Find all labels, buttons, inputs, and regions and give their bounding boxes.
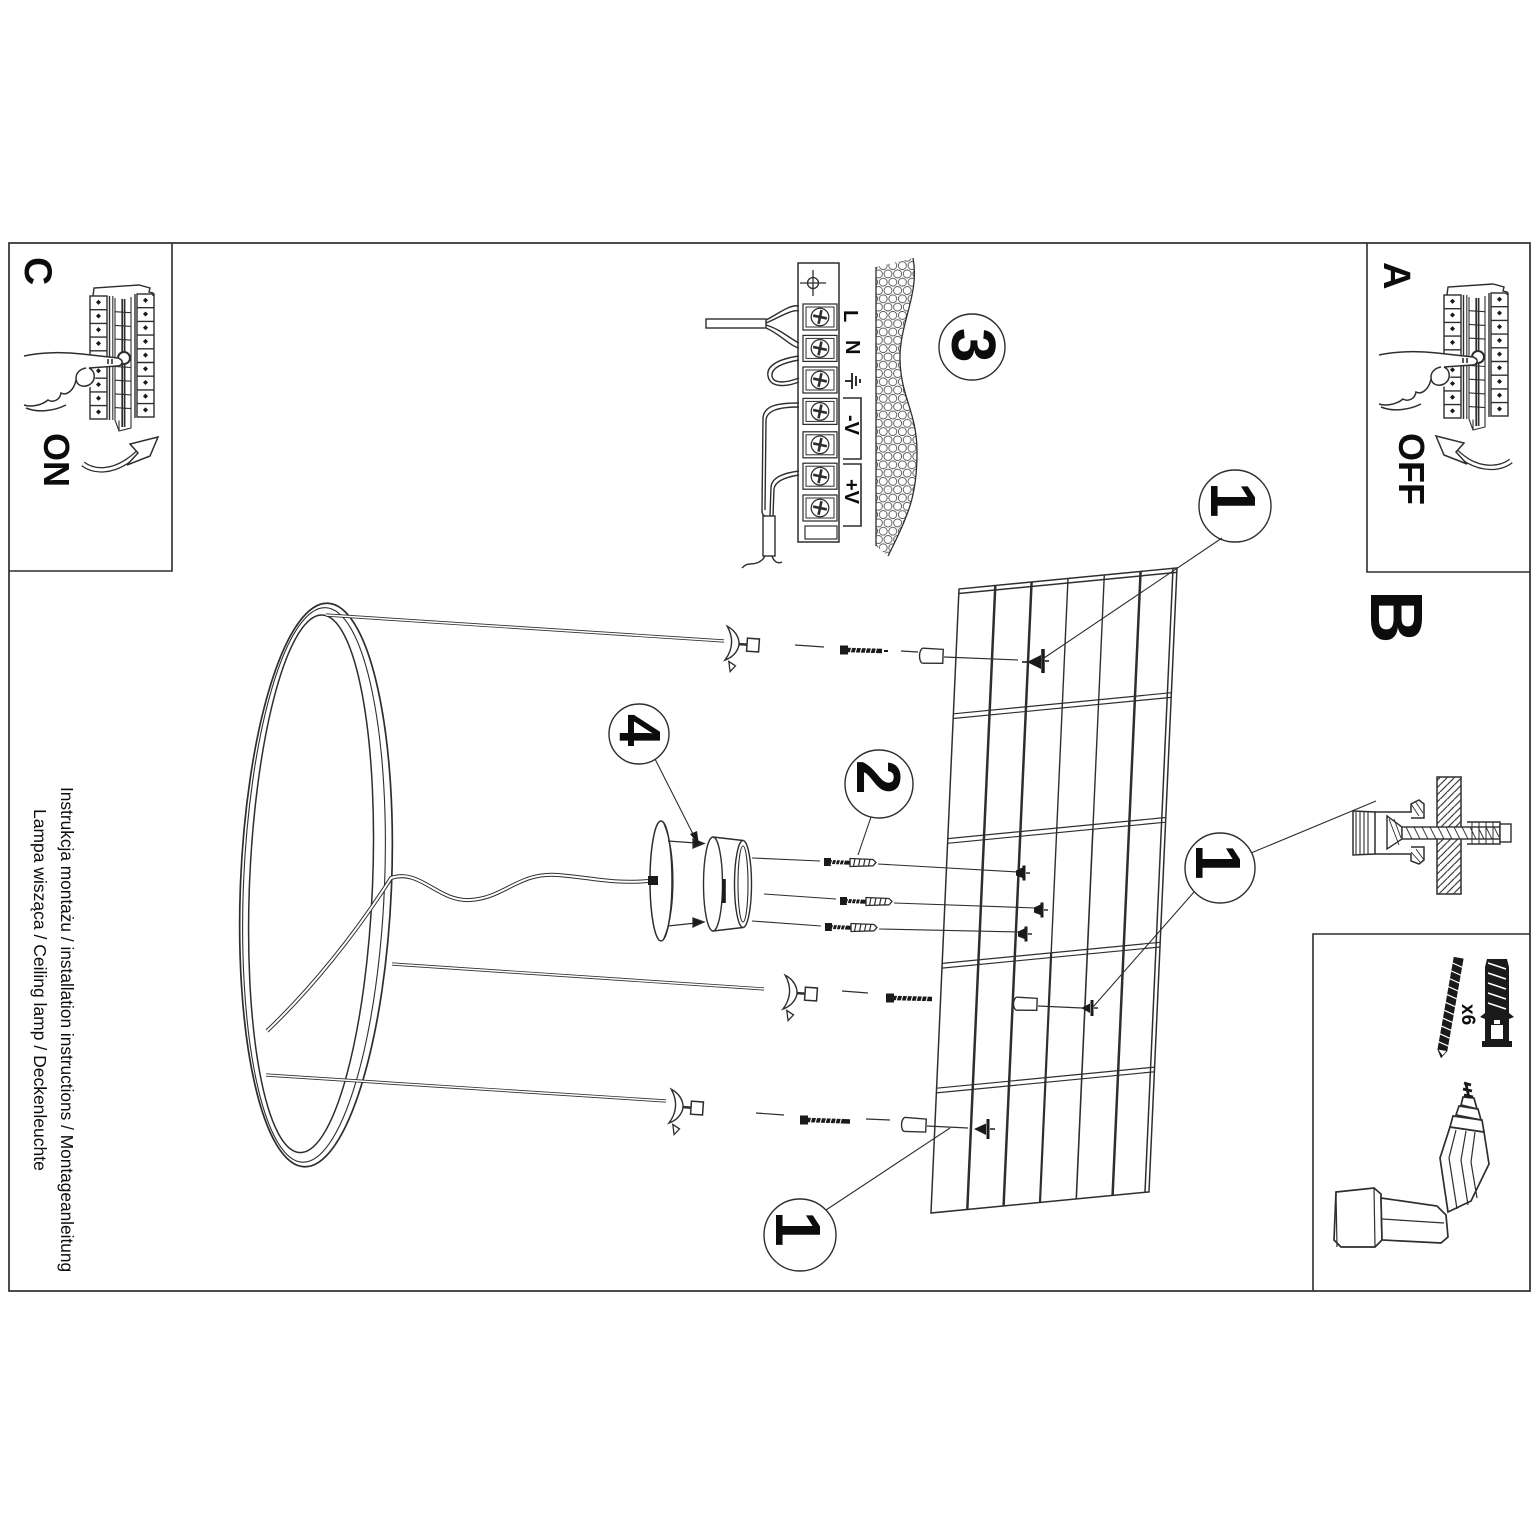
svg-text:ON: ON — [36, 433, 77, 487]
svg-text:3: 3 — [938, 328, 1007, 362]
svg-text:A: A — [1375, 262, 1417, 289]
svg-text:Lampa wisząca / Ceiling lamp /: Lampa wisząca / Ceiling lamp / Deckenleu… — [30, 809, 50, 1171]
svg-text:4: 4 — [607, 714, 672, 746]
svg-text:-V: -V — [840, 415, 862, 436]
svg-text:1: 1 — [1182, 844, 1254, 880]
svg-text:2: 2 — [843, 760, 912, 794]
svg-text:C: C — [16, 257, 59, 285]
svg-text:L: L — [839, 310, 861, 322]
svg-text:OFF: OFF — [1391, 433, 1432, 505]
svg-text:Instrukcja montażu / installat: Instrukcja montażu / installation instru… — [57, 787, 77, 1272]
svg-text:B: B — [1355, 590, 1438, 643]
svg-text:1: 1 — [762, 1211, 834, 1247]
svg-text:N: N — [841, 340, 863, 354]
svg-text:+V: +V — [840, 479, 862, 505]
svg-text:1: 1 — [1197, 482, 1269, 518]
svg-text:x6: x6 — [1457, 1004, 1478, 1025]
